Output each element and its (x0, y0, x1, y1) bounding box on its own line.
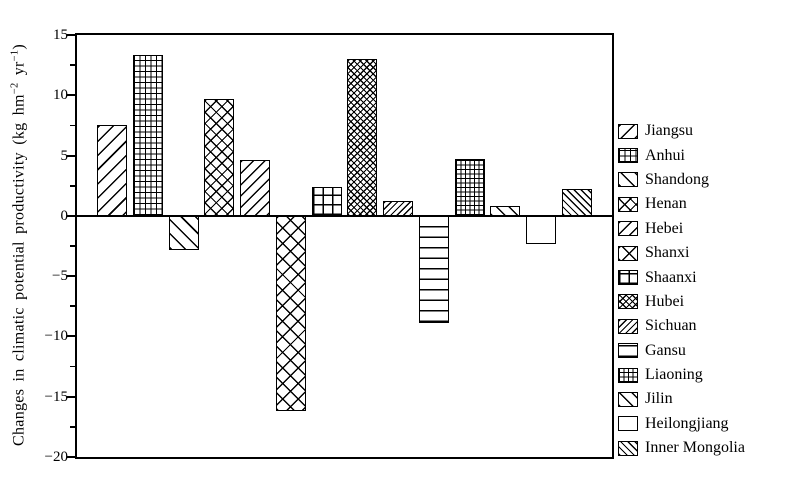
y-tick-minor (70, 426, 75, 428)
legend-swatch-diag-f-wide (618, 124, 638, 139)
legend-swatch-diag-b-med (618, 392, 638, 407)
legend-label-heilongjiang: Heilongjiang (645, 415, 729, 433)
y-axis-title-sup-hm: −2 (9, 83, 20, 95)
bar-chart-figure: Changes in climatic potential productivi… (0, 0, 785, 484)
y-tick-label: −20 (20, 447, 68, 467)
bar-hebei (240, 160, 270, 215)
y-tick-minor (70, 64, 75, 66)
bar-heilongjiang (526, 216, 556, 244)
bar-inner-mongolia (562, 189, 592, 216)
bar-shanxi (276, 216, 306, 411)
y-tick-major (67, 155, 75, 157)
legend-swatch-cross-med (618, 197, 638, 212)
legend-swatch-grid-dense (618, 368, 638, 383)
legend-item-shaanxi: Shaanxi (618, 265, 745, 289)
y-tick-label: 5 (20, 146, 68, 166)
legend-item-shandong: Shandong (618, 168, 745, 192)
legend-swatch-plain (618, 416, 638, 431)
legend-item-inner-mongolia: Inner Mongolia (618, 436, 745, 460)
legend-label-liaoning: Liaoning (645, 366, 703, 384)
legend-item-heilongjiang: Heilongjiang (618, 412, 745, 436)
y-tick-minor (70, 366, 75, 368)
legend-swatch-diag-b-dense (618, 441, 638, 456)
legend-swatch-horiz (618, 343, 638, 358)
legend-item-jiangsu: Jiangsu (618, 119, 745, 143)
bar-sichuan (383, 201, 413, 215)
legend-item-hubei: Hubei (618, 290, 745, 314)
y-tick-label: −15 (20, 387, 68, 407)
legend-item-henan: Henan (618, 192, 745, 216)
legend-label-anhui: Anhui (645, 147, 685, 165)
bar-liaoning (455, 159, 485, 216)
legend-item-shanxi: Shanxi (618, 241, 745, 265)
legend-label-jilin: Jilin (645, 390, 673, 408)
bar-jiangsu (97, 125, 127, 215)
legend-swatch-diag-f-dense (618, 319, 638, 334)
y-tick-label: 0 (20, 206, 68, 226)
legend-swatch-grid-wide (618, 270, 638, 285)
y-axis-title-text-mid: yr (11, 61, 28, 82)
bar-shaanxi (312, 187, 342, 216)
y-tick-major (67, 94, 75, 96)
legend-label-jiangsu: Jiangsu (645, 122, 693, 140)
y-tick-minor (70, 185, 75, 187)
bar-gansu (419, 216, 449, 323)
y-axis-title-sup-yr: −1 (9, 50, 20, 62)
legend-item-gansu: Gansu (618, 339, 745, 363)
legend-swatch-diag-f-med (618, 221, 638, 236)
y-tick-label: −10 (20, 326, 68, 346)
legend-label-shandong: Shandong (645, 171, 709, 189)
legend-item-sichuan: Sichuan (618, 314, 745, 338)
y-tick-label: −5 (20, 266, 68, 286)
legend-label-shanxi: Shanxi (645, 244, 689, 262)
y-tick-major (67, 215, 75, 217)
legend-item-hebei: Hebei (618, 217, 745, 241)
legend-swatch-cross-wide (618, 246, 638, 261)
legend-label-shaanxi: Shaanxi (645, 269, 697, 287)
y-tick-major (67, 34, 75, 36)
legend-label-gansu: Gansu (645, 342, 686, 360)
legend-label-hubei: Hubei (645, 293, 684, 311)
bar-shandong (169, 216, 199, 250)
legend-swatch-grid-fine (618, 148, 638, 163)
legend-swatch-cross-dense (618, 294, 638, 309)
legend-item-liaoning: Liaoning (618, 363, 745, 387)
y-tick-major (67, 275, 75, 277)
y-tick-major (67, 335, 75, 337)
plot-area (77, 35, 612, 457)
bar-anhui (133, 55, 163, 215)
y-tick-major (67, 456, 75, 458)
legend-label-hebei: Hebei (645, 220, 683, 238)
legend-label-inner-mongolia: Inner Mongolia (645, 439, 745, 457)
bar-henan (204, 99, 234, 216)
legend: JiangsuAnhuiShandongHenanHebeiShanxiShaa… (618, 119, 745, 460)
y-tick-minor (70, 125, 75, 127)
legend-swatch-diag-b-wide (618, 172, 638, 187)
y-tick-minor (70, 245, 75, 247)
y-tick-minor (70, 305, 75, 307)
legend-item-jilin: Jilin (618, 387, 745, 411)
legend-label-sichuan: Sichuan (645, 317, 697, 335)
y-tick-label: 15 (20, 25, 68, 45)
legend-item-anhui: Anhui (618, 143, 745, 167)
bar-jilin (490, 206, 520, 216)
bar-hubei (347, 59, 377, 216)
y-tick-major (67, 396, 75, 398)
y-tick-label: 10 (20, 85, 68, 105)
legend-label-henan: Henan (645, 195, 687, 213)
